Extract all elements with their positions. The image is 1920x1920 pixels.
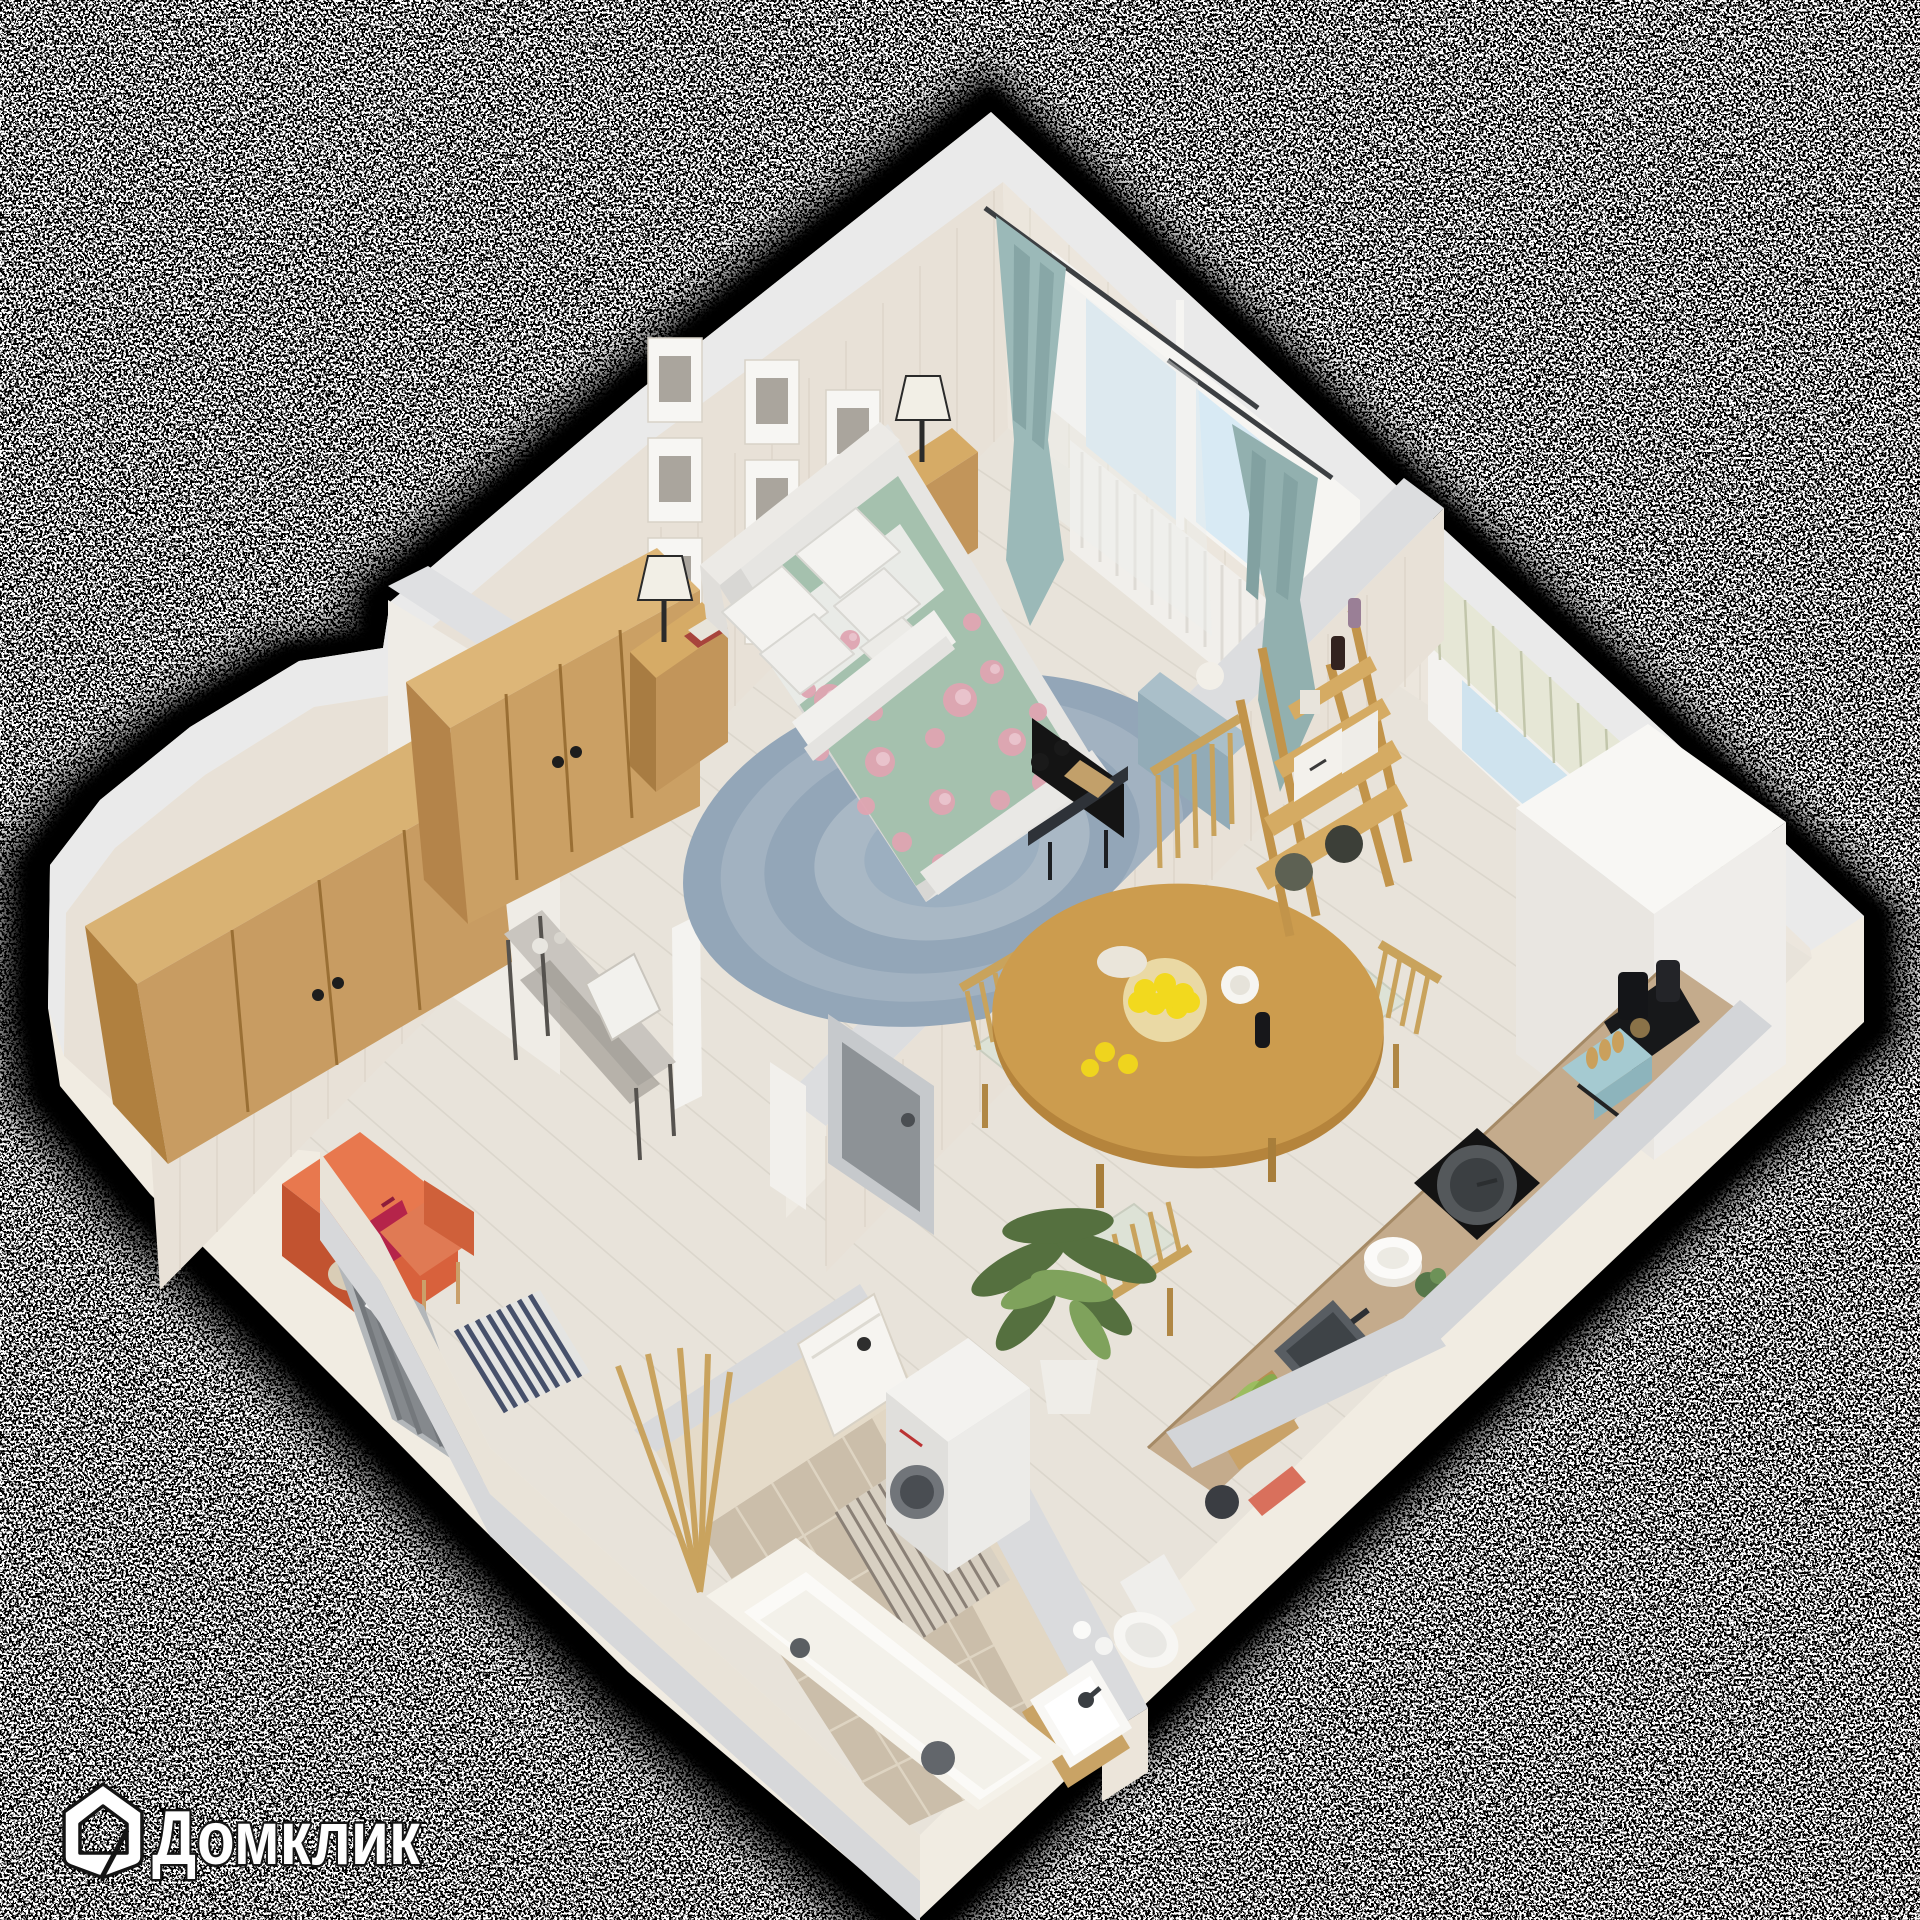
svg-text:Домклик: Домклик bbox=[152, 1796, 421, 1881]
